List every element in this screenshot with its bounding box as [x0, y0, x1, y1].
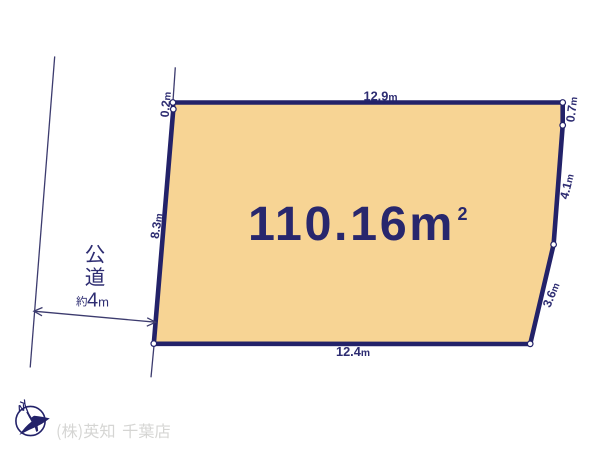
svg-text:0.7m: 0.7m [563, 96, 580, 123]
svg-text:110.16m: 110.16m [248, 197, 455, 251]
svg-text:2: 2 [458, 204, 468, 224]
svg-text:4m: 4m [87, 290, 109, 312]
svg-text:N: N [17, 402, 27, 415]
svg-text:12.9m: 12.9m [363, 88, 397, 103]
